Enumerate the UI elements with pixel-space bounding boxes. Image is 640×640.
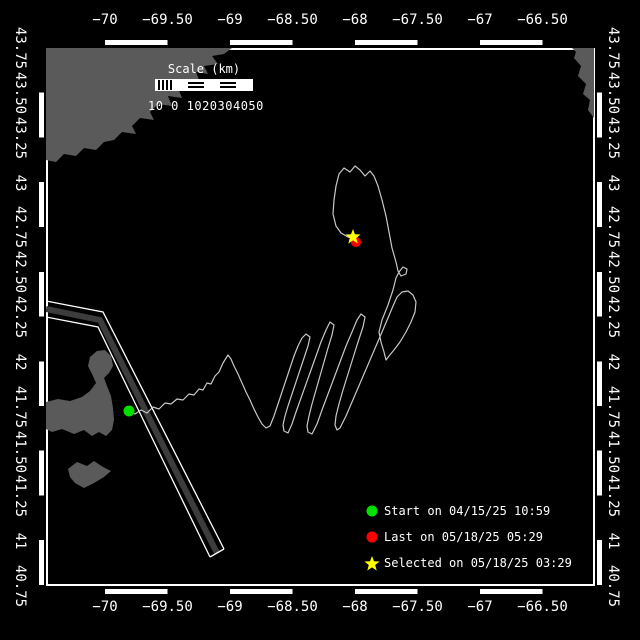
lon-tick-label: −67.50 bbox=[392, 12, 443, 28]
legend-item: Selected on 05/18/25 03:29 bbox=[362, 550, 572, 576]
glider-track-line bbox=[129, 166, 416, 434]
lat-tick-label: 41.75 bbox=[605, 386, 621, 428]
scale-bar-segment-striped bbox=[220, 80, 236, 90]
lon-tick-label: −70 bbox=[92, 12, 117, 28]
lon-tick-label: −68 bbox=[342, 12, 367, 28]
land-islands bbox=[68, 461, 111, 488]
land-cape-cod bbox=[46, 350, 114, 436]
legend-item: Last on 05/18/25 05:29 bbox=[362, 524, 572, 550]
lat-tick-label: 42.50 bbox=[605, 251, 621, 293]
lat-tick-label: 43.50 bbox=[605, 72, 621, 114]
scale-bar-segment-striped bbox=[188, 80, 204, 90]
map-plot-window: −70−69.50−69−68.50−68−67.50−67−66.50 −70… bbox=[0, 0, 640, 640]
lat-tick-label: 41.25 bbox=[605, 475, 621, 517]
lat-tick-label: 42.25 bbox=[12, 296, 28, 338]
lat-tick-label: 41 bbox=[605, 533, 621, 550]
lat-tick-label: 42.75 bbox=[12, 206, 28, 248]
lat-tick-label: 41.50 bbox=[12, 430, 28, 472]
lat-tick-label: 40.75 bbox=[605, 565, 621, 607]
lat-tick-label: 43.25 bbox=[605, 117, 621, 159]
lon-tick-label: −69 bbox=[217, 599, 242, 615]
lon-tick-label: −66.50 bbox=[517, 599, 568, 615]
lat-tick-label: 42.25 bbox=[605, 296, 621, 338]
land-nova-scotia bbox=[572, 48, 594, 118]
legend-circle-icon bbox=[362, 528, 384, 546]
lat-tick-label: 42.75 bbox=[605, 206, 621, 248]
legend-star-icon bbox=[362, 554, 384, 572]
lat-tick-label: 41.75 bbox=[12, 386, 28, 428]
scale-bar-segment-solid bbox=[172, 80, 188, 90]
scale-bar-labels: 10 0 1020304050 bbox=[148, 99, 260, 113]
lat-tick-label: 41.25 bbox=[12, 475, 28, 517]
lon-tick-label: −67.50 bbox=[392, 599, 443, 615]
lon-tick-label: −67 bbox=[467, 599, 492, 615]
frame-zebra-right bbox=[597, 48, 602, 586]
scale-bar-segment-solid bbox=[236, 80, 252, 90]
start-position-marker[interactable] bbox=[124, 406, 135, 417]
lon-tick-label: −66.50 bbox=[517, 12, 568, 28]
frame-zebra-bottom bbox=[46, 589, 595, 594]
scale-bar-graphic bbox=[155, 79, 253, 91]
frame-zebra-top bbox=[46, 40, 595, 45]
track-legend: Start on 04/15/25 10:59Last on 05/18/25 … bbox=[362, 498, 572, 576]
legend-label: Selected on 05/18/25 03:29 bbox=[384, 556, 572, 570]
lon-tick-label: −68.50 bbox=[267, 599, 318, 615]
legend-label: Last on 05/18/25 05:29 bbox=[384, 530, 543, 544]
lon-tick-label: −69 bbox=[217, 12, 242, 28]
lon-tick-label: −70 bbox=[92, 599, 117, 615]
lon-tick-label: −68 bbox=[342, 599, 367, 615]
lat-tick-label: 41.50 bbox=[605, 430, 621, 472]
lat-tick-label: 40.75 bbox=[12, 565, 28, 607]
lat-tick-label: 43 bbox=[605, 174, 621, 191]
lat-tick-label: 41 bbox=[12, 533, 28, 550]
legend-label: Start on 04/15/25 10:59 bbox=[384, 504, 550, 518]
legend-circle-icon bbox=[362, 502, 384, 520]
shipping-lane-inner-line bbox=[46, 317, 210, 557]
legend-item: Start on 04/15/25 10:59 bbox=[362, 498, 572, 524]
frame-zebra-left bbox=[39, 48, 44, 586]
lat-tick-label: 43.75 bbox=[12, 27, 28, 69]
lon-tick-label: −67 bbox=[467, 12, 492, 28]
lat-tick-label: 43.50 bbox=[12, 72, 28, 114]
scale-bar-title: Scale (km) bbox=[148, 62, 260, 76]
lat-tick-label: 42 bbox=[605, 353, 621, 370]
scale-bar: Scale (km) 10 0 1020304050 bbox=[148, 62, 260, 113]
lat-tick-label: 43 bbox=[12, 174, 28, 191]
lon-tick-label: −69.50 bbox=[142, 599, 193, 615]
lon-tick-label: −69.50 bbox=[142, 12, 193, 28]
scale-bar-segment-solid bbox=[204, 80, 220, 90]
lat-tick-label: 42.50 bbox=[12, 251, 28, 293]
lat-tick-label: 43.25 bbox=[12, 117, 28, 159]
scale-bar-segment-hatch bbox=[156, 80, 172, 90]
lon-tick-label: −68.50 bbox=[267, 12, 318, 28]
lat-tick-label: 42 bbox=[12, 353, 28, 370]
lat-tick-label: 43.75 bbox=[605, 27, 621, 69]
